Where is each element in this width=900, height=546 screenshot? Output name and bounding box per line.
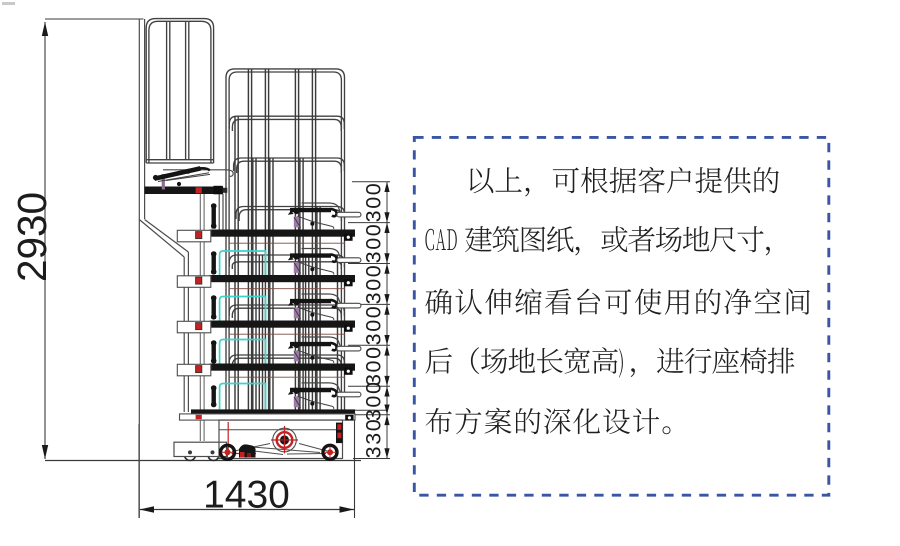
- svg-text:300: 300: [362, 182, 386, 223]
- svg-text:1430: 1430: [203, 474, 290, 517]
- svg-text:300: 300: [362, 305, 386, 346]
- svg-text:2930: 2930: [9, 192, 55, 282]
- svg-text:330: 330: [362, 418, 386, 459]
- svg-text:300: 300: [362, 345, 386, 386]
- svg-text:300: 300: [362, 380, 386, 421]
- svg-text:300: 300: [362, 223, 386, 264]
- svg-text:300: 300: [362, 264, 386, 305]
